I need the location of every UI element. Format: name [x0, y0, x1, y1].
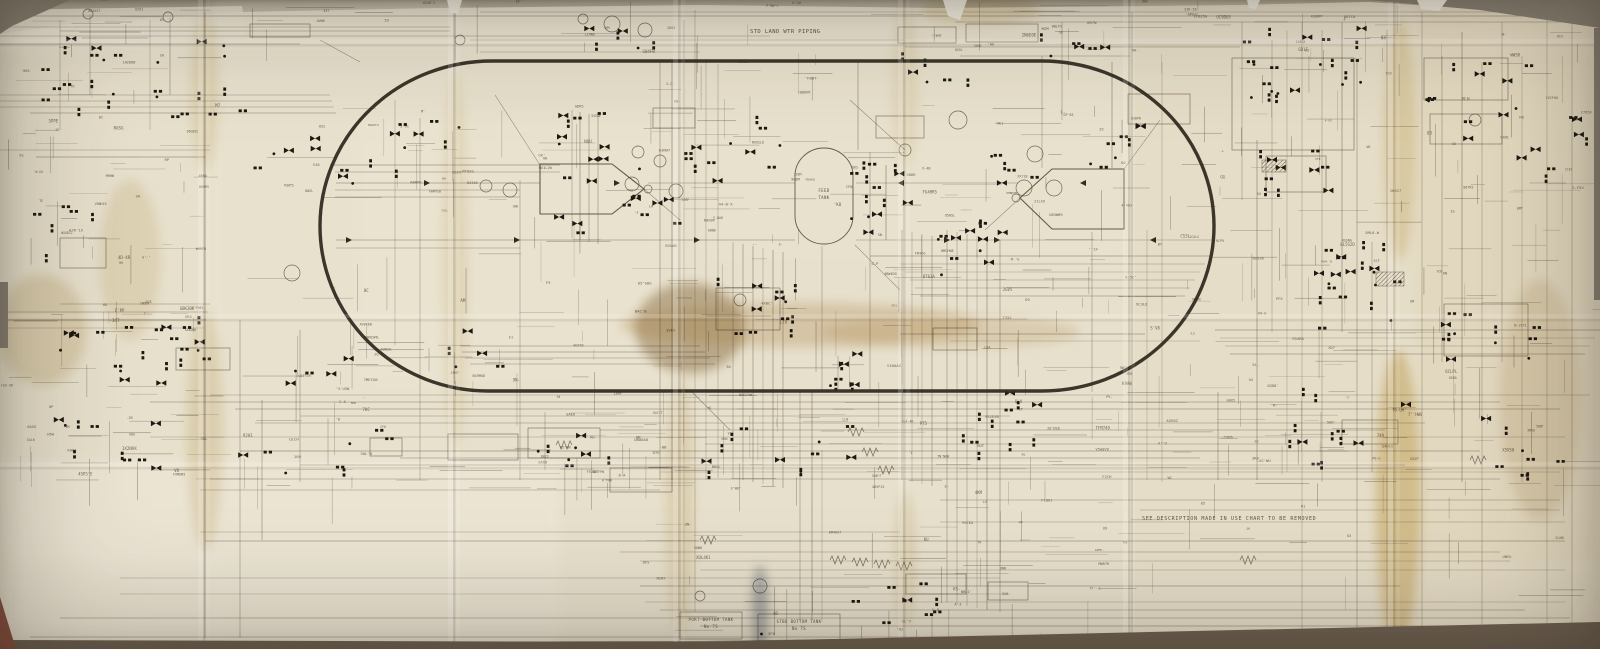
- svg-text:0UTC0: 0UTC0: [1344, 14, 1356, 19]
- svg-text:ULCH: ULCH: [289, 436, 299, 441]
- svg-text:GPFD-: GPFD-: [1095, 548, 1104, 552]
- svg-text:TN'NRW: TN'NRW: [937, 454, 949, 458]
- svg-text:ASE02: ASE02: [1166, 418, 1178, 423]
- svg-text:XD7: XD7: [1328, 346, 1335, 350]
- svg-text:'7: '7: [1345, 396, 1349, 400]
- svg-text:K'PKR: K'PKR: [602, 479, 612, 483]
- svg-text:CS3L: CS3L: [1180, 233, 1190, 238]
- svg-text:G-P: G-P: [872, 261, 880, 266]
- svg-text:5U24: 5U24: [100, 0, 110, 1]
- svg-text:C-S: C-S: [339, 399, 347, 404]
- svg-text:7MECG0: 7MECG0: [364, 377, 379, 382]
- svg-text:BG9MUD: BG9MUD: [473, 374, 486, 378]
- svg-text:0GD8': 0GD8': [1267, 384, 1278, 388]
- svg-text:2WW: 2WW: [1142, 0, 1148, 4]
- svg-text:'AP64': 'AP64': [1185, 12, 1199, 17]
- svg-text:95CEA: 95CEA: [962, 521, 974, 525]
- svg-text:MS4UU: MS4UU: [806, 178, 815, 182]
- svg-text:M': M': [421, 110, 425, 114]
- svg-text:-LC: -LC: [1189, 332, 1195, 336]
- svg-text:X4L6: X4L6: [27, 438, 35, 442]
- svg-text:U3: U3: [1347, 534, 1351, 538]
- svg-text:94: 94: [557, 395, 561, 399]
- svg-text:8WLP2: 8WLP2: [1052, 25, 1062, 29]
- svg-text:WXUDC2: WXUDC2: [61, 231, 72, 235]
- svg-text:-L: -L: [1220, 149, 1224, 153]
- svg-text:R090P: R090P: [704, 218, 716, 223]
- svg-text:0P: 0P: [49, 405, 53, 409]
- svg-text:-M: -M: [1245, 527, 1249, 531]
- svg-text:C886NT: C886NT: [798, 91, 812, 95]
- svg-text:B4348: B4348: [467, 181, 477, 185]
- svg-text:L-: L-: [1061, 110, 1066, 115]
- svg-text:MHHW: MHHW: [106, 174, 115, 178]
- svg-text:S'WD': S'WD': [731, 487, 742, 491]
- svg-text:UC9DUS: UC9DUS: [1216, 14, 1231, 19]
- svg-text:WG: WG: [1367, 145, 1371, 149]
- svg-text:9N-: 9N-: [513, 378, 520, 383]
- svg-text:FM46G: FM46G: [915, 251, 926, 255]
- svg-text:XS: XS: [19, 154, 23, 158]
- svg-text:CSX-XR: CSX-XR: [1, 384, 14, 388]
- svg-text:097N: 097N: [1087, 20, 1097, 25]
- svg-text:F7: F7: [509, 335, 514, 340]
- svg-text:CVCFHG: CVCFHG: [1546, 96, 1559, 100]
- svg-text:AD: AD: [773, 611, 778, 616]
- svg-text:3UL'9: 3UL'9: [360, 451, 372, 456]
- svg-text:-': -': [362, 397, 366, 401]
- svg-text:6HD: 6HD: [351, 401, 357, 405]
- svg-text:28'DE8: 28'DE8: [1047, 426, 1060, 430]
- svg-text:RDP5: RDP5: [284, 183, 294, 188]
- svg-text:6N: 6N: [1443, 271, 1447, 275]
- svg-text:63NH7: 63NH7: [659, 147, 670, 152]
- svg-text:'06S: '06S: [21, 69, 29, 73]
- svg-text:F9: F9: [546, 280, 551, 285]
- svg-text:M2M: M2M: [1042, 26, 1050, 31]
- svg-text:6CLPL: 6CLPL: [1445, 369, 1458, 374]
- svg-text:8L5S2D: 8L5S2D: [1340, 242, 1355, 247]
- svg-text:'WC1: 'WC1: [996, 122, 1004, 126]
- svg-text:2-F5V: 2-F5V: [1572, 185, 1584, 190]
- photographed-piping-diagram: 'W-XA1H28UW1GXS36G82CTE'06SMXA76'1XWXUDC…: [0, 0, 1600, 649]
- svg-text:TR: TR: [978, 541, 982, 545]
- svg-text:UNFU: UNFU: [1503, 555, 1512, 559]
- svg-text:92H1: 92H1: [243, 433, 253, 438]
- svg-text:H22: H22: [319, 125, 326, 129]
- svg-text:PFX: PFX: [1276, 297, 1283, 301]
- pipe-header-label: STD LAND WTR PIPING: [750, 29, 821, 35]
- svg-text:V5A0V9: V5A0V9: [1096, 448, 1109, 452]
- svg-text:TE: TE: [39, 199, 43, 203]
- svg-text:RCP9: RCP9: [1216, 239, 1224, 243]
- svg-text:S'V8: S'V8: [1150, 325, 1160, 330]
- svg-text:1H28UW: 1H28UW: [123, 61, 137, 65]
- svg-text:V-VS: V-VS: [1325, 118, 1332, 122]
- svg-text:U9: U9: [1103, 527, 1107, 531]
- svg-text:FXNC: FXNC: [1500, 136, 1508, 140]
- svg-text:0C: 0C: [364, 288, 369, 293]
- svg-text:LLN: LLN: [843, 418, 849, 422]
- svg-text:TFM749: TFM749: [1096, 425, 1111, 430]
- svg-text:SCF: SCF: [1374, 259, 1380, 263]
- svg-text:VCB: VCB: [1437, 269, 1443, 273]
- svg-text:E46: E46: [313, 163, 319, 167]
- svg-text:G04FW: G04FW: [643, 49, 656, 54]
- svg-text:GXC7T: GXC7T: [653, 411, 663, 415]
- svg-text:H4: H4: [1249, 378, 1253, 382]
- svg-text:PV-: PV-: [1106, 395, 1112, 399]
- svg-text:5UWH: 5UWH: [694, 546, 702, 550]
- svg-text:5W2': 5W2': [1327, 420, 1336, 425]
- svg-text:5ML8-W: 5ML8-W: [1365, 230, 1379, 235]
- svg-text:0SNEU1: 0SNEU1: [381, 347, 392, 351]
- svg-text:PT5: PT5: [920, 421, 928, 426]
- svg-text:FD4RA: FD4RA: [1292, 336, 1304, 341]
- svg-text:88S: 88S: [852, 165, 858, 169]
- svg-text:867R5: 867R5: [1463, 186, 1473, 190]
- svg-text:C1EC: C1EC: [1565, 168, 1573, 172]
- svg-text:XX71B: XX71B: [1017, 174, 1027, 178]
- svg-text:9HBDXM: 9HBDXM: [1006, 191, 1017, 195]
- svg-text:78C: 78C: [362, 407, 370, 412]
- svg-text:109: 109: [294, 454, 302, 459]
- svg-text:GG: GG: [1220, 174, 1225, 179]
- svg-text:9U8M: 9U8M: [791, 177, 800, 181]
- svg-text:45P5'E: 45P5'E: [78, 472, 93, 477]
- svg-text:HMCHWE: HMCHWE: [941, 249, 954, 253]
- svg-text:F9MUN5: F9MUN5: [173, 472, 185, 476]
- svg-text:8-A: 8-A: [619, 473, 627, 478]
- svg-text:C7D5X: C7D5X: [1581, 110, 1593, 114]
- svg-text:RH: RH: [590, 436, 594, 440]
- svg-text:P8H-'8: P8H-'8: [1321, 260, 1332, 264]
- svg-text:4BW4DG: 4BW4DG: [884, 272, 897, 276]
- svg-text:EH: EH: [160, 54, 164, 58]
- svg-text:MU1L2W: MU1L2W: [539, 166, 553, 170]
- svg-text:5DEEXK: 5DEEXK: [1252, 257, 1264, 261]
- svg-text:KS-: KS-: [953, 586, 960, 591]
- svg-text:A-3: A-3: [954, 602, 962, 607]
- svg-text:KGSNFP: KGSNFP: [1311, 14, 1323, 18]
- svg-text:XTE: XTE: [1315, 157, 1321, 161]
- svg-text:GAB'F: GAB'F: [872, 474, 881, 478]
- svg-text:H5W: H5W: [47, 433, 54, 437]
- svg-text:A8RPK: A8RPK: [410, 179, 422, 184]
- svg-text:97G: 97G: [653, 450, 661, 455]
- svg-text:BT63A: BT63A: [923, 274, 936, 279]
- svg-text:ES: ES: [1451, 210, 1455, 214]
- svg-text:2GV5: 2GV5: [1003, 287, 1013, 292]
- svg-text:4F: 4F: [1019, 519, 1024, 524]
- removal-note-label: SEE DESCRIPTION MADE IN USE CHART TO BE …: [1142, 516, 1316, 522]
- svg-text:5PPE: 5PPE: [49, 119, 59, 124]
- svg-text:'5'U3W: '5'U3W: [336, 387, 350, 391]
- svg-text:54: 54: [1257, 192, 1261, 196]
- svg-text:6ASG: 6ASG: [27, 424, 37, 429]
- svg-text:0M4KG7: 0M4KG7: [829, 530, 842, 534]
- svg-text:P'BW'C: P'BW'C: [766, 4, 778, 8]
- svg-text:KNU: KNU: [722, 437, 728, 441]
- photo-scene: 'W-XA1H28UW1GXS36G82CTE'06SMXA76'1XWXUDC…: [0, 0, 1600, 649]
- svg-text:KBWD: KBWD: [708, 229, 716, 233]
- svg-text:RP: RP: [165, 158, 170, 162]
- svg-text:33T: 33T: [323, 9, 330, 13]
- svg-text:W-: W-: [1502, 31, 1507, 36]
- svg-text:2CXLG: 2CXLG: [1190, 235, 1199, 239]
- svg-text:V-4B: V-4B: [922, 166, 930, 170]
- svg-text:V0NH19: V0NH19: [95, 202, 107, 206]
- svg-text:RUT: RUT: [977, 443, 985, 448]
- svg-text:N2B7: N2B7: [657, 576, 666, 581]
- svg-text:GE: GE: [1059, 31, 1063, 35]
- svg-text:952EVB: 952EVB: [985, 414, 999, 419]
- svg-text:U50SL: U50SL: [945, 214, 956, 218]
- svg-text:'B: 'B: [336, 418, 340, 422]
- svg-text:WC: WC: [1168, 476, 1172, 480]
- svg-text:-T3M5: -T3M5: [1222, 435, 1233, 439]
- svg-text:LV: LV: [983, 500, 987, 504]
- svg-text:AV0KEW: AV0KEW: [360, 323, 373, 327]
- svg-text:DFS: DFS: [643, 559, 651, 564]
- svg-text:S-C-: S-C-: [666, 82, 674, 86]
- svg-text:BW2L: BW2L: [305, 189, 313, 193]
- svg-text:'FBBT-: 'FBBT-: [805, 75, 819, 80]
- svg-text:5X6: 5X6: [1002, 592, 1008, 596]
- svg-text:0580: 0580: [1449, 376, 1457, 380]
- svg-text:DC: DC: [99, 114, 104, 119]
- svg-text:21LX9: 21LX9: [1034, 200, 1045, 204]
- svg-text:2N6E0E: 2N6E0E: [1022, 33, 1037, 38]
- svg-text:1G: 1G: [55, 128, 59, 132]
- stbd-tank-label: STBD BOTTOM TANK No 7S: [759, 619, 839, 633]
- svg-text:FG4HR5: FG4HR5: [923, 190, 938, 195]
- svg-text:5U: 5U: [384, 19, 388, 23]
- svg-text:CNH: CNH: [513, 205, 519, 209]
- svg-text:WWSR: WWSR: [1510, 53, 1520, 58]
- svg-text:8SSNG: 8SSNG: [1342, 239, 1352, 243]
- svg-text:-W1: -W1: [706, 405, 712, 409]
- svg-text:1X2N9X: 1X2N9X: [122, 446, 137, 451]
- svg-text:HHPE0: HHPE0: [429, 188, 441, 193]
- svg-text:'K0: 'K0: [834, 202, 842, 207]
- svg-text:RASG: RASG: [114, 126, 124, 131]
- svg-text:-2R: -2R: [127, 416, 133, 420]
- svg-text:NAGC9W: NAGC9W: [739, 393, 753, 397]
- svg-text:8X5L: 8X5L: [955, 48, 963, 52]
- svg-text:HC4: HC4: [1557, 35, 1563, 39]
- svg-text:'W-XA: 'W-XA: [34, 170, 43, 174]
- svg-text:3-: 3-: [944, 483, 949, 488]
- svg-text:TF'--L: TF'--L: [1090, 586, 1101, 590]
- svg-text:NRL1': NRL1': [961, 590, 972, 594]
- svg-text:CK': CK': [538, 153, 545, 158]
- svg-text:EP': EP': [516, 0, 523, 4]
- svg-text:BGTFB: BGTFB: [574, 343, 584, 347]
- svg-text:U'LW: U'LW: [792, 1, 801, 5]
- svg-text:R6: R6: [1519, 115, 1524, 120]
- svg-text:-2: -2: [634, 210, 638, 214]
- svg-text:0MT: 0MT: [1517, 207, 1523, 211]
- svg-text:NUU: NUU: [584, 139, 592, 144]
- svg-text:30: 30: [726, 365, 730, 369]
- svg-text:25: 25: [1099, 126, 1104, 131]
- svg-text:3-: 3-: [779, 242, 783, 246]
- svg-text:F18U1: F18U1: [1041, 499, 1052, 503]
- svg-text:0AEU: 0AEU: [566, 412, 575, 416]
- svg-text:KU: KU: [924, 537, 929, 542]
- svg-text:''1X: ''1X: [1089, 247, 1099, 251]
- svg-text:L07F2R: L07F2R: [298, 374, 311, 378]
- svg-text:P6GKT4: P6GKT4: [368, 123, 379, 127]
- svg-text:MWR7R: MWR7R: [1099, 562, 1110, 566]
- svg-text:H-: H-: [1273, 403, 1278, 408]
- svg-text:G6R5: G6R5: [575, 105, 584, 109]
- svg-text:9C3LD: 9C3LD: [1136, 302, 1148, 307]
- feed-tank-label: FEED TANK: [797, 188, 851, 202]
- svg-text:--: --: [752, 242, 757, 247]
- svg-text:R1: R1: [1301, 504, 1305, 508]
- svg-text:WN: WN: [636, 435, 640, 439]
- svg-text:05: 05: [1201, 502, 1205, 506]
- svg-text:-BB: -BB: [660, 446, 667, 450]
- svg-text:DX51: DX51: [135, 8, 143, 12]
- svg-text:PC: PC: [1255, 440, 1259, 444]
- svg-text:XDTFPN: XDTFPN: [593, 470, 605, 474]
- svg-text:D9: D9: [1025, 298, 1029, 302]
- svg-text:4KM: 4KM: [975, 490, 983, 495]
- port-tank-label: PORT BOTTOM TANK No 7S: [681, 617, 741, 631]
- svg-text:2LN6: 2LN6: [1555, 536, 1564, 540]
- svg-text:X''U: X''U: [1158, 442, 1167, 446]
- svg-text:N99SLD: N99SLD: [752, 140, 764, 144]
- svg-text:L14NA: L14NA: [585, 32, 595, 36]
- svg-text:M-'G: M-'G: [1011, 257, 1020, 261]
- svg-text:AVW6: AVW6: [317, 19, 325, 23]
- svg-text:XD40'2: XD40'2: [423, 1, 436, 5]
- svg-text:M'H: M'H: [1462, 97, 1470, 102]
- svg-text:9NN: 9NN: [1000, 566, 1006, 570]
- svg-text:34--: 34--: [1252, 363, 1260, 367]
- svg-text:05'G8G: 05'G8G: [638, 280, 652, 285]
- svg-text:'73MT: '73MT: [931, 34, 943, 38]
- svg-text:CF0: CF0: [380, 425, 386, 429]
- svg-text:2G: 2G: [374, 353, 378, 357]
- svg-text:UB3WB9: UB3WB9: [1049, 213, 1062, 217]
- svg-text:XUL4K1: XUL4K1: [696, 555, 711, 560]
- svg-text:KBG: KBG: [129, 433, 135, 437]
- svg-text:40VP12: 40VP12: [872, 485, 885, 489]
- svg-text:44-B'X: 44-B'X: [719, 201, 734, 206]
- svg-text:F2CH: F2CH: [1102, 474, 1112, 479]
- svg-text:HUX5: HUX5: [1227, 399, 1235, 403]
- svg-text:SN: SN: [878, 233, 882, 237]
